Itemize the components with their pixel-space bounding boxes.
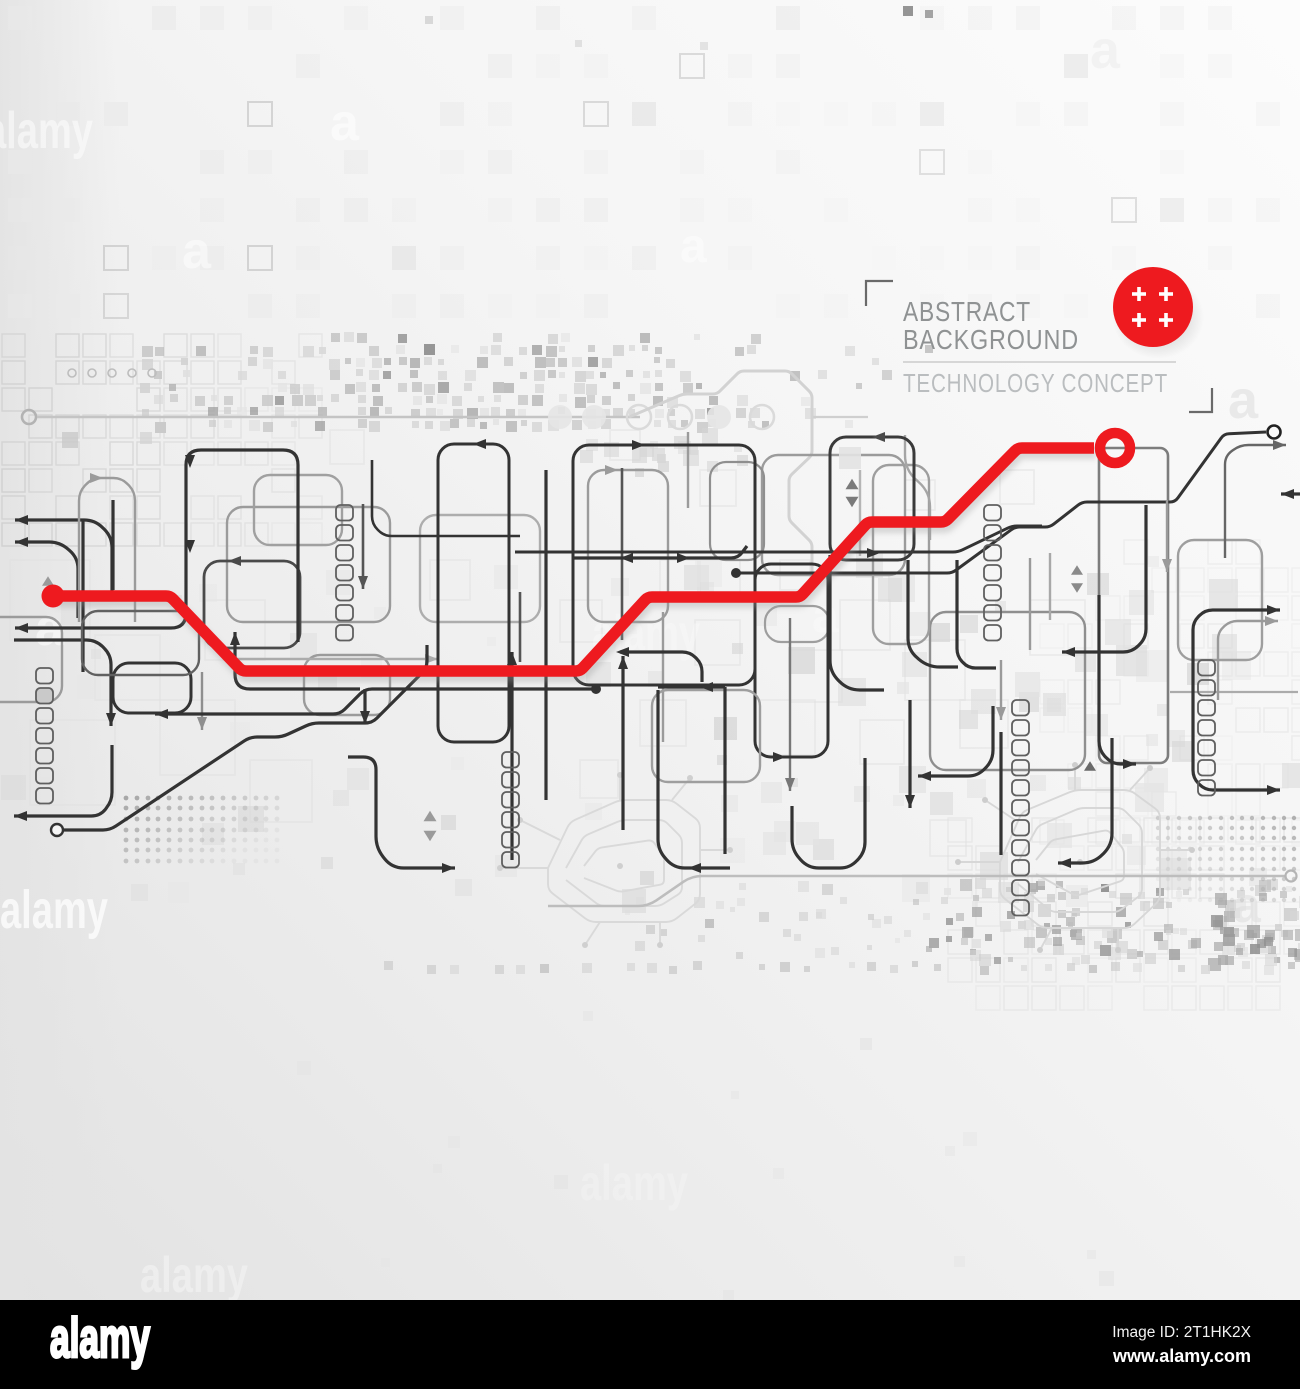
svg-text:www.alamy.com: www.alamy.com (1112, 1346, 1251, 1366)
svg-text:a: a (1228, 370, 1259, 430)
svg-text:TECHNOLOGY CONCEPT: TECHNOLOGY CONCEPT (903, 368, 1168, 398)
svg-text:alamy: alamy (580, 1155, 688, 1211)
svg-text:alamy: alamy (0, 102, 93, 160)
svg-text:a: a (182, 222, 212, 280)
svg-text:ABSTRACT: ABSTRACT (903, 296, 1031, 327)
svg-text:a: a (330, 94, 360, 152)
svg-text:BACKGROUND: BACKGROUND (903, 324, 1079, 355)
svg-text:a: a (1233, 877, 1262, 933)
svg-text:a: a (680, 220, 707, 273)
svg-text:Image ID: 2T1HK2X: Image ID: 2T1HK2X (1112, 1324, 1251, 1341)
svg-text:alamy: alamy (50, 1306, 150, 1369)
svg-text:alamy: alamy (0, 880, 108, 940)
svg-text:a: a (1090, 20, 1121, 80)
svg-text:alamy: alamy (140, 1247, 248, 1303)
